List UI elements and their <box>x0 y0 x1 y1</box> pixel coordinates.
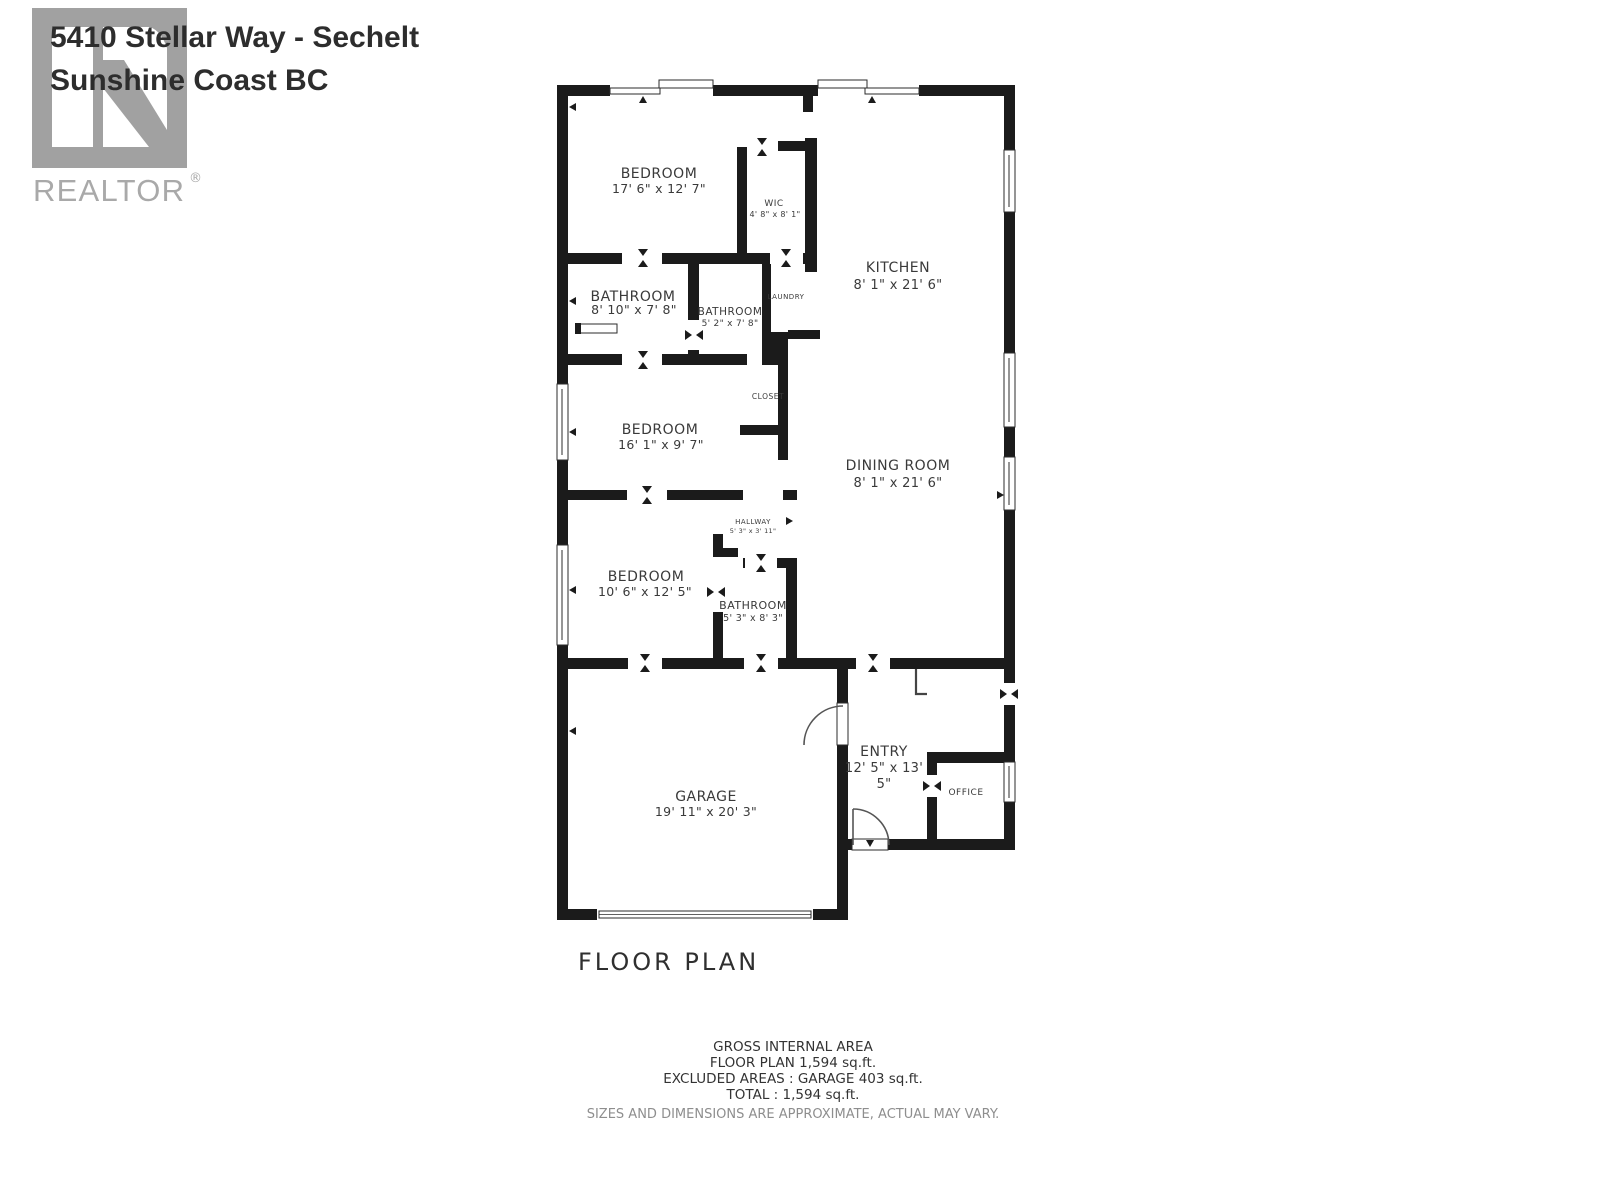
room-dims-bathroom3: 5' 3" x 8' 3" <box>723 613 783 624</box>
room-label-garage: GARAGE <box>675 789 737 805</box>
room-dims-dining: 8' 1" x 21' 6" <box>854 476 943 491</box>
room-label-wic: WIC <box>764 199 783 209</box>
room-dims-wic: 4' 8" x 8' 1" <box>750 210 801 219</box>
room-label-bedroom3: BEDROOM <box>608 569 685 585</box>
room-label-office: OFFICE <box>948 788 983 798</box>
door-markers <box>638 138 1018 791</box>
window <box>1004 457 1015 510</box>
room-dims-bedroom1: 17' 6" x 12' 7" <box>612 181 706 196</box>
room-label-bathroom3: BATHROOM <box>719 599 787 612</box>
room-label-closet: CLOSET <box>752 392 784 401</box>
floor-plan-drawing: BEDROOM 17' 6" x 12' 7" WIC 4' 8" x 8' 1… <box>0 0 1600 1200</box>
summary-gross-internal-area: GROSS INTERNAL AREA <box>558 1039 1028 1055</box>
room-dims-bathroom2: 5' 2" x 7' 8" <box>702 319 759 329</box>
room-dims-garage: 19' 11" x 20' 3" <box>655 804 757 819</box>
room-label-dining: DINING ROOM <box>846 458 951 474</box>
room-label-hallway: HALLWAY <box>735 518 771 526</box>
window <box>557 384 568 460</box>
window <box>1004 762 1015 802</box>
room-dims-bedroom2: 16' 1" x 9' 7" <box>618 437 704 452</box>
room-label-entry: ENTRY <box>860 744 908 760</box>
summary-disclaimer: SIZES AND DIMENSIONS ARE APPROXIMATE, AC… <box>558 1107 1028 1123</box>
room-label-laundry: LAUNDRY <box>768 293 805 301</box>
room-dims-entry-1: 12' 5" x 13' <box>845 761 923 776</box>
floor-plan-caption: FLOOR PLAN <box>578 948 759 976</box>
summary-excluded-areas: EXCLUDED AREAS : GARAGE 403 sq.ft. <box>558 1071 1028 1087</box>
room-dims-kitchen: 8' 1" x 21' 6" <box>854 278 943 293</box>
room-label-bathroom2: BATHROOM <box>698 306 763 318</box>
area-summary: GROSS INTERNAL AREA FLOOR PLAN 1,594 sq.… <box>558 1039 1028 1123</box>
room-dims-hallway: 5' 3" x 3' 11" <box>730 527 777 535</box>
room-label-bedroom1: BEDROOM <box>621 166 698 182</box>
window <box>610 80 713 96</box>
room-dims-bathroom1: 8' 10" x 7' 8" <box>591 302 677 317</box>
window <box>1004 150 1015 212</box>
floor-plan-page: REALTOR ® 5410 Stellar Way - Sechelt Sun… <box>0 0 1600 1200</box>
window <box>557 545 568 645</box>
window <box>1004 353 1015 427</box>
entry-closet-jog <box>916 669 927 694</box>
garage-door <box>597 909 813 920</box>
room-dims-bedroom3: 10' 6" x 12' 5" <box>598 584 692 599</box>
bathtub-fixture <box>575 323 617 334</box>
window <box>818 80 919 96</box>
room-label-bedroom2: BEDROOM <box>622 422 699 438</box>
room-dims-entry-2: 5" <box>877 777 892 792</box>
summary-floor-plan-area: FLOOR PLAN 1,594 sq.ft. <box>558 1055 1028 1071</box>
room-label-kitchen: KITCHEN <box>866 260 930 276</box>
summary-total-area: TOTAL : 1,594 sq.ft. <box>558 1087 1028 1103</box>
